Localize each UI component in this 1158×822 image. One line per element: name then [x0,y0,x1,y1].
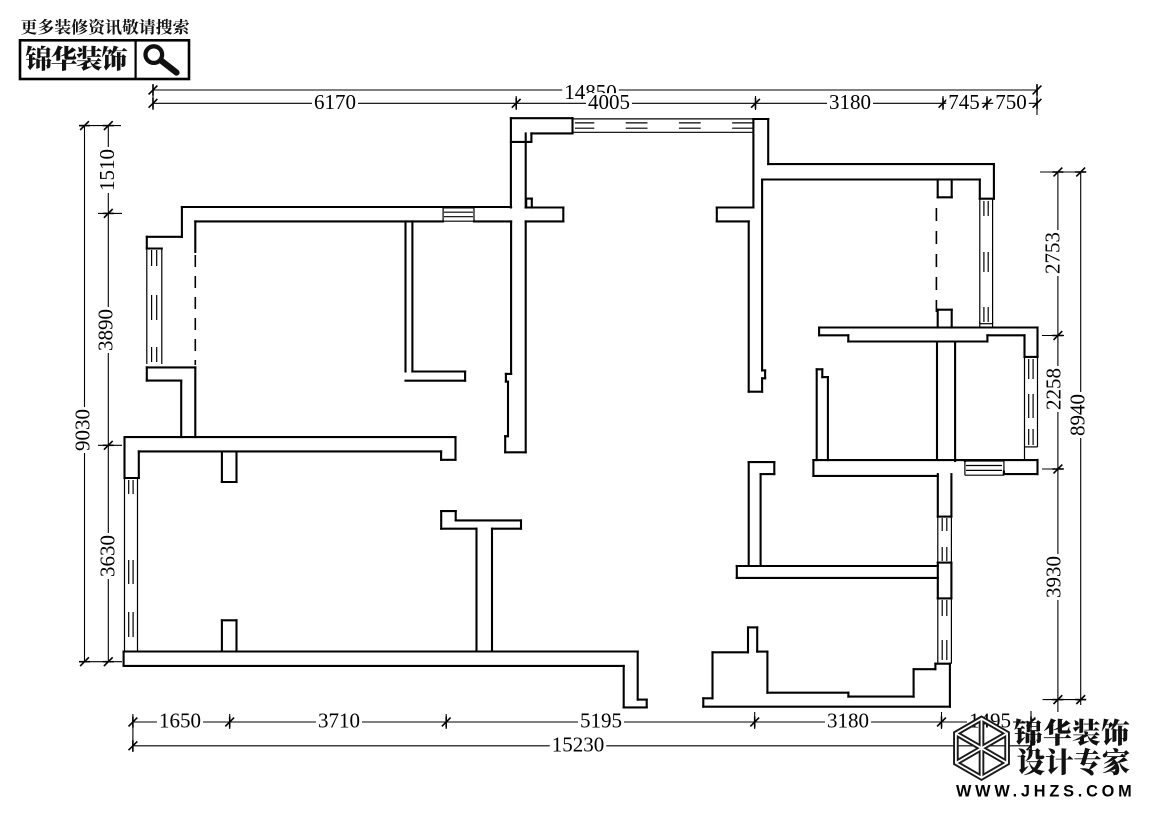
svg-text:1650: 1650 [159,709,201,733]
svg-text:3180: 3180 [827,709,869,733]
svg-text:3890: 3890 [94,309,118,351]
svg-text:3630: 3630 [96,535,120,577]
svg-text:3180: 3180 [829,90,871,114]
svg-text:5195: 5195 [580,709,622,733]
svg-text:WWW.JHZS.COM: WWW.JHZS.COM [956,783,1135,801]
svg-text:2753: 2753 [1041,232,1065,274]
svg-text:745: 745 [948,90,980,114]
svg-text:750: 750 [995,90,1027,114]
svg-text:6170: 6170 [314,90,356,114]
svg-text:3710: 3710 [318,709,360,733]
svg-text:2258: 2258 [1042,368,1066,410]
svg-text:4005: 4005 [588,90,630,114]
svg-text:8940: 8940 [1066,394,1090,436]
svg-text:1510: 1510 [95,149,119,191]
svg-text:3930: 3930 [1042,556,1066,598]
svg-text:9030: 9030 [71,409,95,451]
svg-text:15230: 15230 [552,732,605,756]
